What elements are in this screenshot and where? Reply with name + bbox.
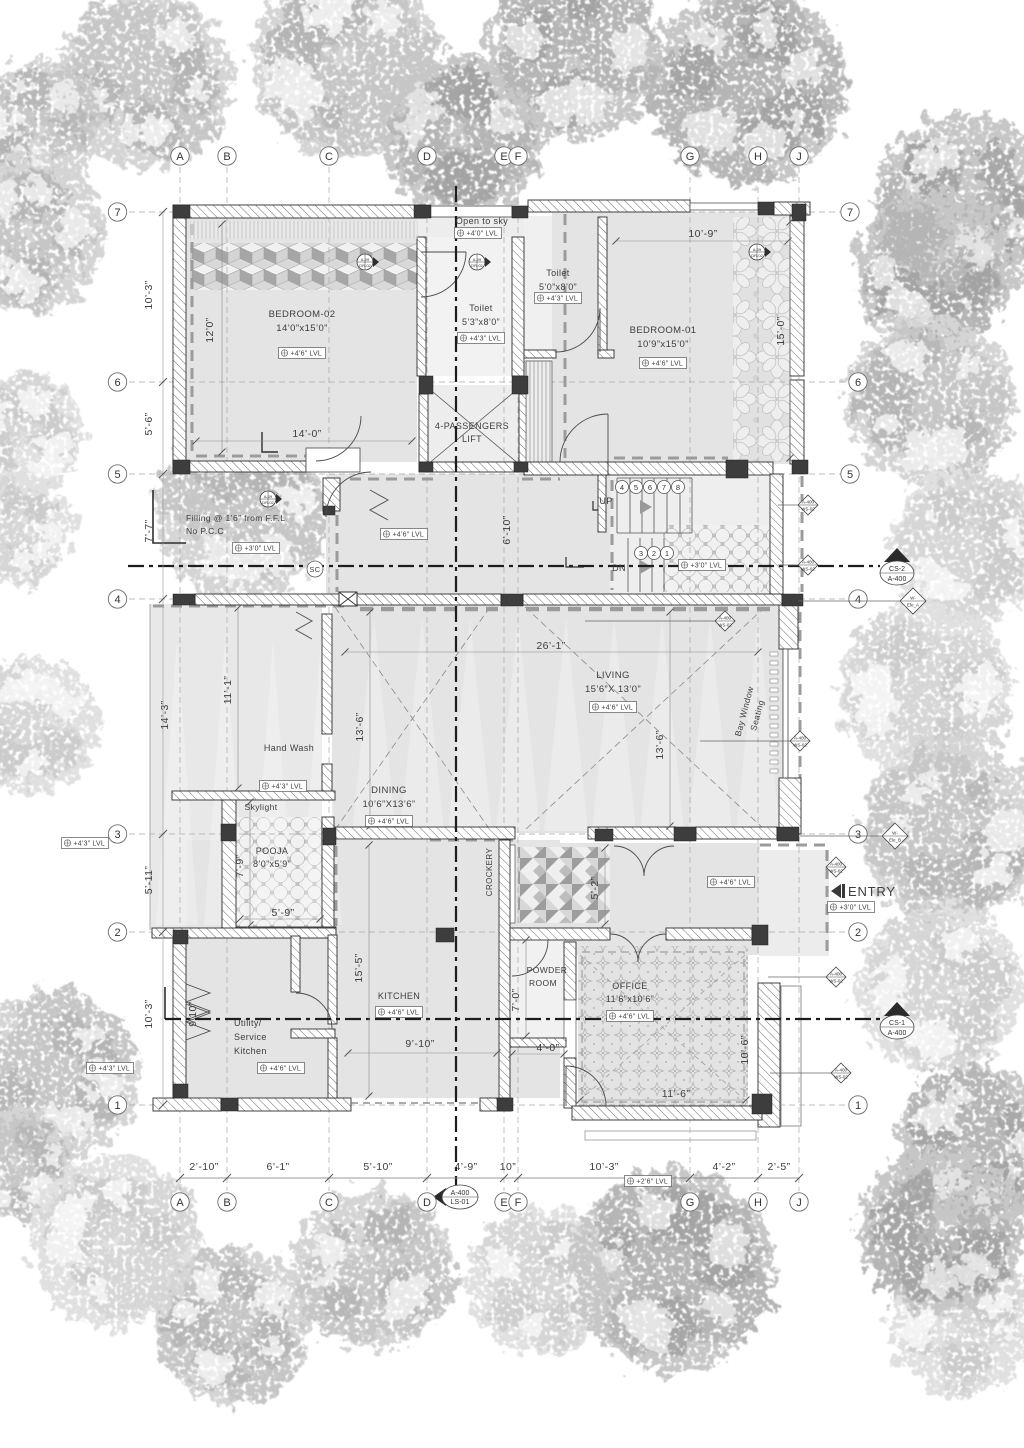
svg-text:14’-3”: 14’-3” (159, 700, 171, 729)
svg-text:D: D (423, 151, 431, 163)
svg-text:4-PASSENGERS: 4-PASSENGERS (435, 421, 509, 431)
svg-text:4’-2”: 4’-2” (712, 1161, 735, 1173)
svg-text:Utility/: Utility/ (234, 1018, 262, 1028)
svg-text:9’-10”: 9’-10” (405, 1038, 434, 1050)
svg-text:26’-1”: 26’-1” (536, 640, 565, 652)
svg-text:+4’0” LVL: +4’0” LVL (467, 231, 498, 238)
svg-text:10’6”X13’6”: 10’6”X13’6” (363, 799, 416, 810)
svg-text:+4’3” LVL: +4’3” LVL (272, 784, 303, 791)
svg-text:6: 6 (855, 377, 861, 389)
svg-text:WS-02: WS-02 (829, 979, 843, 984)
svg-text:Service: Service (234, 1032, 267, 1042)
svg-text:14’-0”: 14’-0” (292, 428, 321, 440)
svg-text:7’-0”: 7’-0” (510, 988, 522, 1011)
svg-text:WS-02: WS-02 (829, 869, 843, 874)
svg-text:+4’6” LVL: +4’6” LVL (388, 1010, 419, 1017)
svg-text:7’-9”: 7’-9” (234, 854, 246, 877)
svg-text:A-400: A-400 (794, 736, 807, 741)
svg-text:6: 6 (114, 377, 120, 389)
svg-text:1: 1 (855, 1100, 861, 1112)
svg-text:A-400: A-400 (830, 862, 843, 867)
svg-text:+2’6” LVL: +2’6” LVL (637, 1179, 668, 1186)
svg-text:11’-6”: 11’-6” (662, 1088, 691, 1100)
svg-text:WS-02: WS-02 (801, 567, 815, 572)
svg-text:15’-0”: 15’-0” (775, 316, 787, 345)
svg-text:A-400: A-400 (451, 1190, 470, 1197)
svg-text:D: D (423, 1197, 431, 1209)
svg-text:7’-7”: 7’-7” (143, 519, 155, 542)
svg-text:DR-02: DR-02 (751, 253, 763, 258)
svg-text:W-: W- (892, 831, 898, 836)
svg-text:+4’3” LVL: +4’3” LVL (99, 1066, 130, 1073)
svg-text:5’-2”: 5’-2” (589, 876, 601, 899)
svg-text:H: H (754, 151, 762, 163)
svg-text:POWDER: POWDER (527, 965, 568, 975)
svg-text:A: A (176, 151, 184, 163)
svg-text:Filling @ 1’6” from F.F.L: Filling @ 1’6” from F.F.L (186, 513, 285, 523)
svg-text:2: 2 (114, 927, 120, 939)
svg-text:A-09: A-09 (264, 494, 273, 499)
svg-text:4’-9”: 4’-9” (454, 1161, 477, 1173)
svg-text:DINING: DINING (371, 785, 407, 796)
svg-text:A-400: A-400 (835, 1068, 848, 1073)
svg-text:A-400: A-400 (888, 576, 907, 583)
svg-text:J: J (796, 151, 802, 163)
svg-text:LIVING: LIVING (596, 670, 630, 681)
svg-text:Skylight: Skylight (245, 802, 278, 812)
svg-text:2: 2 (652, 549, 656, 558)
svg-text:6: 6 (648, 483, 652, 492)
svg-text:DR-02: DR-02 (262, 500, 274, 505)
svg-text:WS-02: WS-02 (834, 1075, 848, 1080)
svg-text:+3’0” LVL: +3’0” LVL (840, 905, 871, 912)
svg-text:9’10”: 9’10” (187, 1001, 199, 1026)
svg-text:3: 3 (639, 549, 643, 558)
svg-text:+3’0” LVL: +3’0” LVL (691, 563, 722, 570)
svg-text:OFFICE: OFFICE (612, 981, 647, 991)
svg-text:+4’6” LVL: +4’6” LVL (270, 1066, 301, 1073)
svg-text:+4’6” LVL: +4’6” LVL (720, 880, 751, 887)
svg-text:G: G (686, 151, 695, 163)
svg-text:C: C (325, 151, 333, 163)
svg-text:14’0”x15’0”: 14’0”x15’0” (276, 323, 327, 334)
svg-text:No P.C.C: No P.C.C (186, 526, 224, 536)
svg-text:DN: DN (612, 563, 626, 573)
svg-text:UP: UP (599, 496, 612, 506)
svg-text:5’-10”: 5’-10” (363, 1161, 392, 1173)
svg-text:ENTRY: ENTRY (848, 884, 896, 899)
svg-text:Toilet: Toilet (469, 303, 493, 313)
svg-text:4’-0”: 4’-0” (536, 1042, 559, 1054)
svg-text:6’-1”: 6’-1” (266, 1161, 289, 1173)
svg-text:10’-3”: 10’-3” (589, 1161, 618, 1173)
svg-text:+3’0” LVL: +3’0” LVL (245, 546, 276, 553)
svg-text:POOJA: POOJA (256, 846, 289, 856)
svg-text:+4’6” LVL: +4’6” LVL (652, 361, 683, 368)
svg-text:CROCKERY: CROCKERY (485, 848, 494, 897)
svg-text:B: B (223, 1197, 230, 1209)
svg-text:DR-02: DR-02 (471, 263, 483, 268)
svg-text:A-400: A-400 (802, 560, 815, 565)
svg-text:8: 8 (676, 483, 680, 492)
svg-text:Ele_B: Ele_B (889, 838, 901, 843)
svg-text:10’9”x15’0”: 10’9”x15’0” (637, 339, 688, 350)
svg-text:G: G (686, 1197, 695, 1209)
svg-text:2: 2 (855, 927, 861, 939)
svg-text:E: E (500, 151, 507, 163)
svg-text:3: 3 (855, 829, 861, 841)
svg-text:10’-6”: 10’-6” (739, 1035, 751, 1064)
svg-text:WS-02: WS-02 (793, 743, 807, 748)
svg-text:5: 5 (634, 483, 638, 492)
svg-text:Toilet: Toilet (546, 268, 570, 278)
svg-text:CS-2: CS-2 (889, 566, 905, 573)
svg-text:A-400: A-400 (830, 972, 843, 977)
svg-text:3: 3 (114, 829, 120, 841)
svg-text:2’-5”: 2’-5” (767, 1161, 790, 1173)
svg-text:2’-10”: 2’-10” (189, 1161, 218, 1173)
svg-text:CS-1: CS-1 (889, 1020, 905, 1027)
svg-text:15’-5”: 15’-5” (353, 953, 365, 982)
svg-text:LS-01: LS-01 (451, 1199, 470, 1206)
svg-text:A-09: A-09 (473, 257, 482, 262)
svg-text:+4’6” LVL: +4’6” LVL (393, 532, 424, 539)
svg-text:F: F (515, 151, 522, 163)
svg-text:7: 7 (847, 207, 853, 219)
svg-text:11’-1”: 11’-1” (222, 676, 234, 705)
svg-text:LIFT: LIFT (462, 434, 482, 444)
svg-text:15’6”X 13’0”: 15’6”X 13’0” (585, 684, 641, 695)
svg-text:1: 1 (114, 1100, 120, 1112)
svg-text:A-400: A-400 (888, 1030, 907, 1037)
svg-text:ROOM: ROOM (529, 978, 557, 988)
svg-text:5’-9”: 5’-9” (271, 907, 294, 919)
svg-text:5’-11”: 5’-11” (143, 866, 155, 895)
svg-text:5’3”x8’0”: 5’3”x8’0” (462, 317, 500, 327)
svg-text:5’-6”: 5’-6” (143, 412, 155, 435)
svg-text:B: B (223, 151, 230, 163)
svg-text:A: A (176, 1197, 184, 1209)
svg-text:+4’6” LVL: +4’6” LVL (378, 819, 409, 826)
svg-text:5: 5 (114, 469, 120, 481)
svg-text:10’-3”: 10’-3” (143, 280, 155, 309)
svg-text:A-400: A-400 (719, 616, 732, 621)
svg-text:DR-02: DR-02 (359, 263, 371, 268)
svg-text:WS-02: WS-02 (801, 507, 815, 512)
svg-text:5’0”x8’0”: 5’0”x8’0” (539, 282, 577, 292)
svg-text:1: 1 (665, 549, 669, 558)
svg-text:Ele_A: Ele_A (907, 603, 919, 608)
svg-text:+4’3” LVL: +4’3” LVL (547, 296, 578, 303)
svg-text:13’-6”: 13’-6” (654, 730, 666, 759)
svg-text:4: 4 (620, 483, 624, 492)
svg-text:10’-9”: 10’-9” (688, 228, 717, 240)
svg-text:A-09: A-09 (361, 257, 370, 262)
svg-text:+4’3” LVL: +4’3” LVL (470, 336, 501, 343)
svg-text:BEDROOM-01: BEDROOM-01 (630, 325, 697, 336)
svg-text:7: 7 (114, 207, 120, 219)
svg-text:E: E (500, 1197, 507, 1209)
svg-text:8’0”x5’9”: 8’0”x5’9” (253, 859, 291, 869)
svg-text:4: 4 (855, 594, 861, 606)
svg-text:+4’6” LVL: +4’6” LVL (619, 1014, 650, 1021)
svg-text:10”: 10” (500, 1161, 516, 1173)
svg-text:6’-10”: 6’-10” (501, 515, 513, 544)
svg-text:12’0”: 12’0” (204, 317, 216, 342)
svg-text:SC: SC (309, 565, 320, 574)
svg-text:Kitchen: Kitchen (234, 1046, 267, 1056)
svg-text:13’-6”: 13’-6” (354, 712, 366, 741)
svg-text:BEDROOM-02: BEDROOM-02 (269, 309, 336, 320)
svg-text:+4’6” LVL: +4’6” LVL (602, 705, 633, 712)
svg-text:Hand Wash: Hand Wash (264, 743, 314, 753)
svg-text:C: C (325, 1197, 333, 1209)
svg-text:KITCHEN: KITCHEN (378, 991, 420, 1001)
svg-text:W-: W- (910, 596, 916, 601)
svg-text:11’6”x10’6”: 11’6”x10’6” (606, 994, 654, 1004)
svg-text:+4’3” LVL: +4’3” LVL (74, 841, 105, 848)
svg-text:+4’6” LVL: +4’6” LVL (291, 351, 322, 358)
svg-text:J: J (796, 1197, 802, 1209)
svg-text:5: 5 (847, 469, 853, 481)
svg-text:A-400: A-400 (802, 500, 815, 505)
svg-text:10’-3”: 10’-3” (143, 999, 155, 1028)
svg-text:F: F (515, 1197, 522, 1209)
svg-text:Open to sky: Open to sky (456, 216, 509, 226)
svg-text:A-09: A-09 (753, 247, 762, 252)
svg-text:WS-02: WS-02 (718, 623, 732, 628)
svg-text:4: 4 (114, 594, 120, 606)
svg-text:H: H (754, 1197, 762, 1209)
svg-text:7: 7 (662, 483, 666, 492)
